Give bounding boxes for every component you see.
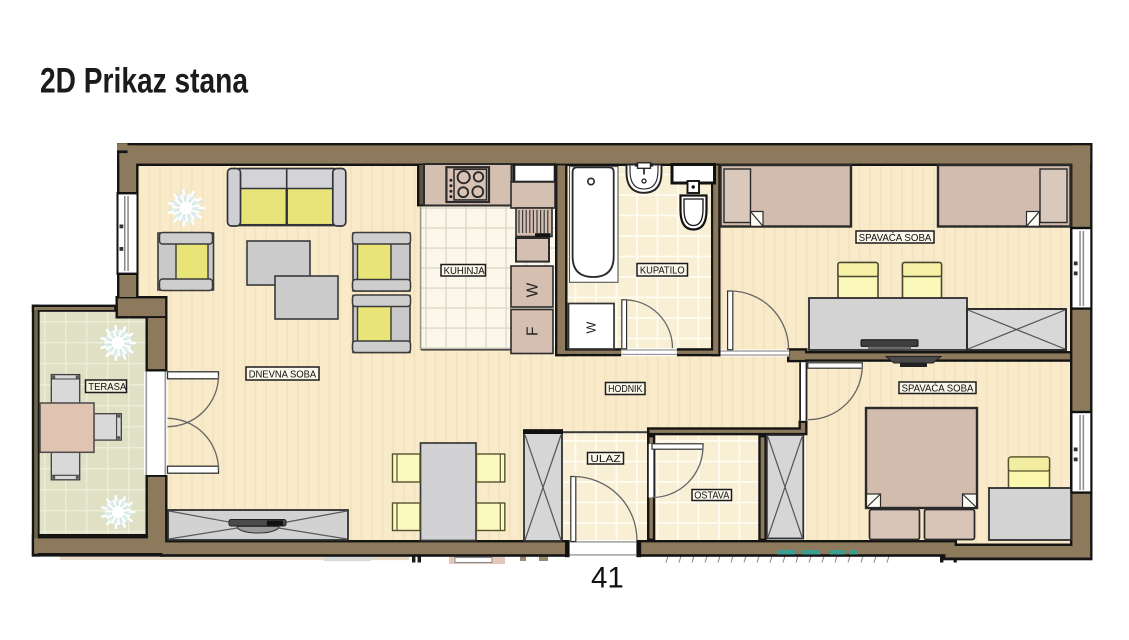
svg-text:SPAVAĆA SOBA: SPAVAĆA SOBA (859, 231, 932, 244)
svg-text:2D Prikaz stana: 2D Prikaz stana (40, 62, 248, 101)
svg-text:W: W (525, 283, 542, 298)
svg-text:F: F (525, 327, 542, 336)
svg-text:KUHINJA: KUHINJA (444, 266, 485, 277)
svg-text:DNEVNA SOBA: DNEVNA SOBA (249, 369, 317, 380)
svg-text:KUPATILO: KUPATILO (640, 266, 685, 277)
svg-text:TERASA: TERASA (88, 382, 126, 393)
svg-text:41: 41 (591, 562, 624, 595)
svg-text:ULAZ: ULAZ (590, 454, 620, 465)
svg-text:HODNIK: HODNIK (608, 384, 642, 395)
svg-text:W: W (585, 322, 599, 334)
svg-text:SPAVAĆA SOBA: SPAVAĆA SOBA (902, 382, 974, 395)
svg-text:OSTAVA: OSTAVA (694, 491, 729, 502)
